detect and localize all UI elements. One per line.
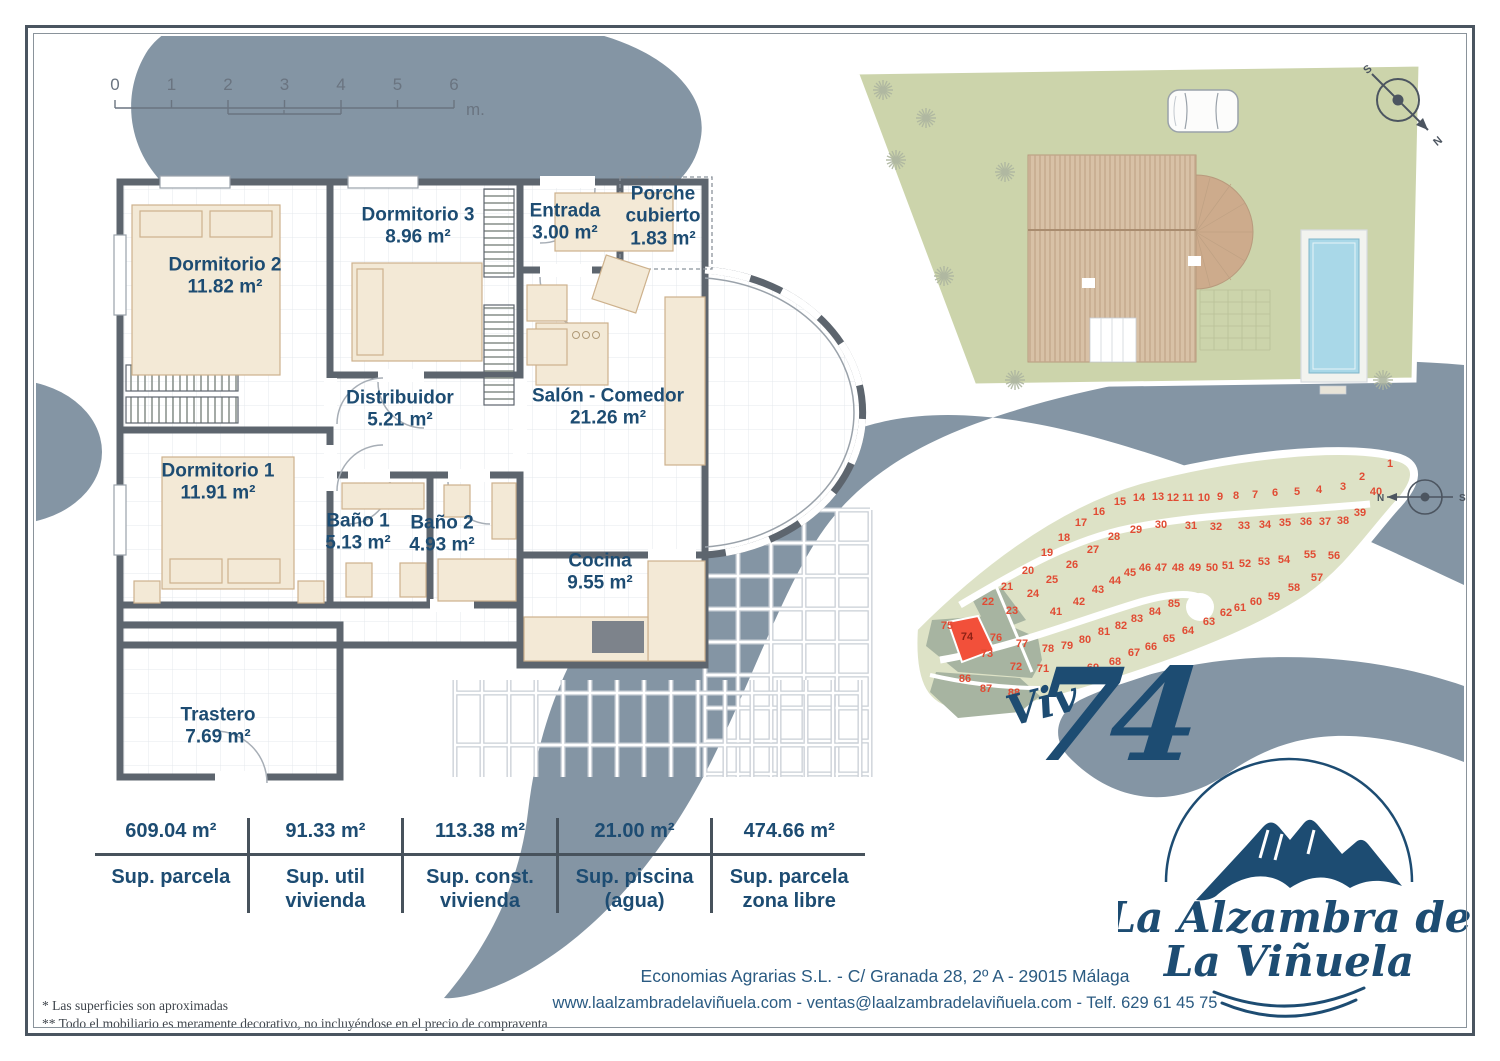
room-area: 5.13 m² (325, 533, 390, 555)
room-label-bano-2: Baño 24.93 m² (409, 513, 474, 558)
plot-number-49: 49 (1189, 562, 1201, 574)
plot-number-38: 38 (1337, 515, 1349, 527)
plot-number-34: 34 (1259, 519, 1272, 531)
plot-number-24: 24 (1027, 588, 1040, 600)
room-area: 5.21 m² (346, 410, 454, 432)
plot-number-84: 84 (1149, 606, 1162, 618)
summary-label: Sup. parcela zona libre (713, 856, 865, 913)
plot-number-15: 15 (1114, 496, 1126, 508)
plot-number-11: 11 (1182, 492, 1194, 504)
summary-column: 21.00 m²Sup. piscina (agua) (559, 818, 714, 913)
room-label-entrada: Entrada3.00 m² (530, 201, 601, 246)
summary-table: 609.04 m²Sup. parcela91.33 m²Sup. util v… (95, 818, 865, 913)
plot-compass-n: N (1377, 493, 1384, 504)
plot-number-36: 36 (1300, 516, 1312, 528)
room-area: 11.82 m² (169, 277, 282, 299)
brochure-page: 0123456 m. (0, 0, 1500, 1061)
plot-number-21: 21 (1001, 581, 1013, 593)
plot-number-48: 48 (1172, 562, 1184, 574)
room-label-dormitorio-2: Dormitorio 211.82 m² (169, 255, 282, 300)
room-label-dormitorio-1: Dormitorio 111.91 m² (162, 461, 275, 506)
plot-number-85: 85 (1168, 598, 1180, 610)
summary-column: 113.38 m²Sup. const. vivienda (404, 818, 559, 913)
plot-number-62: 62 (1220, 607, 1232, 619)
plot-number-30: 30 (1155, 519, 1167, 531)
room-label-trastero: Trastero7.69 m² (181, 705, 256, 750)
plot-number-82: 82 (1115, 620, 1127, 632)
plot-number-32: 32 (1210, 521, 1222, 533)
room-name: Distribuidor (346, 388, 454, 410)
scale-tick-label: 2 (223, 75, 232, 94)
summary-label: Sup. piscina (agua) (559, 856, 711, 913)
plot-number-1: 1 (1387, 458, 1393, 470)
mountain-icon (1196, 820, 1402, 901)
summary-value: 113.38 m² (404, 818, 556, 856)
room-name: Porche cubierto (611, 183, 715, 228)
summary-value: 609.04 m² (95, 818, 247, 856)
footer-company-line: Economias Agrarias S.L. - C/ Granada 28,… (470, 966, 1300, 987)
plot-number-45: 45 (1124, 567, 1136, 579)
plot-number-29: 29 (1130, 524, 1142, 536)
room-name: Baño 1 (325, 511, 390, 533)
footer: Economias Agrarias S.L. - C/ Granada 28,… (470, 966, 1300, 1013)
plot-number-13: 13 (1152, 491, 1164, 503)
plot-number-61: 61 (1234, 602, 1246, 614)
plot-number-75: 75 (941, 620, 953, 632)
plot-number-57: 57 (1311, 572, 1323, 584)
plot-number-10: 10 (1198, 492, 1210, 504)
unit-number: 74 (1024, 641, 1198, 791)
plot-number-58: 58 (1288, 582, 1300, 594)
plot-number-6: 6 (1272, 487, 1278, 499)
plot-number-9: 9 (1217, 491, 1223, 503)
summary-column: 609.04 m²Sup. parcela (95, 818, 250, 913)
plot-number-35: 35 (1279, 517, 1291, 529)
room-area: 4.93 m² (409, 535, 474, 557)
footer-contact-line: www.laalzambradelaviñuela.com - ventas@l… (470, 994, 1300, 1013)
room-area: 21.26 m² (532, 408, 684, 430)
plot-number-59: 59 (1268, 591, 1280, 603)
plot-number-37: 37 (1319, 516, 1331, 528)
plot-number-51: 51 (1222, 560, 1234, 572)
plot-number-3: 3 (1340, 481, 1346, 493)
plot-number-42: 42 (1073, 596, 1085, 608)
room-name: Trastero (181, 705, 256, 727)
footnote: ** Todo el mobiliario es meramente decor… (42, 1015, 548, 1033)
scale-tick-label: 0 (110, 75, 119, 94)
room-label-salon-comedor: Salón - Comedor21.26 m² (532, 386, 684, 431)
plot-number-19: 19 (1041, 547, 1053, 559)
plot-number-8: 8 (1233, 490, 1239, 502)
plot-number-20: 20 (1022, 565, 1034, 577)
plot-number-14: 14 (1133, 492, 1146, 504)
room-name: Salón - Comedor (532, 386, 684, 408)
plot-number-31: 31 (1185, 520, 1197, 532)
site-car (1168, 90, 1238, 132)
plot-number-47: 47 (1155, 562, 1167, 574)
plot-number-12: 12 (1167, 492, 1179, 504)
plot-compass-s: S (1459, 493, 1466, 504)
site-compass-n: N (1431, 134, 1445, 148)
plot-number-83: 83 (1131, 613, 1143, 625)
plot-number-86: 86 (959, 673, 971, 685)
room-name: Entrada (530, 201, 601, 223)
room-name: Baño 2 (409, 513, 474, 535)
plot-number-41: 41 (1050, 606, 1062, 618)
room-label-distribuidor: Distribuidor5.21 m² (346, 388, 454, 433)
plot-number-76: 76 (990, 632, 1002, 644)
summary-value: 21.00 m² (559, 818, 711, 856)
plot-number-54: 54 (1278, 554, 1291, 566)
site-plan: S N (838, 50, 1462, 400)
room-label-dormitorio-3: Dormitorio 38.96 m² (362, 205, 475, 250)
scale-unit-label: m. (466, 100, 485, 119)
room-area: 7.69 m² (181, 727, 256, 749)
unit-title: Viv 74 (992, 655, 1212, 855)
plot-number-55: 55 (1304, 549, 1316, 561)
scale-bar: 0123456 m. (100, 70, 520, 130)
plot-number-17: 17 (1075, 517, 1087, 529)
summary-label: Sup. parcela (95, 856, 247, 889)
plot-number-18: 18 (1058, 532, 1070, 544)
plot-number-39: 39 (1354, 507, 1366, 519)
plot-number-60: 60 (1250, 596, 1262, 608)
room-label-cocina: Cocina9.55 m² (567, 551, 632, 596)
room-label-bano-1: Baño 15.13 m² (325, 511, 390, 556)
plot-number-28: 28 (1108, 531, 1120, 543)
summary-label: Sup. util vivienda (250, 856, 402, 913)
summary-value: 474.66 m² (713, 818, 865, 856)
plot-number-4: 4 (1316, 484, 1323, 496)
plot-number-33: 33 (1238, 520, 1250, 532)
scale-tick-label: 3 (280, 75, 289, 94)
plot-number-16: 16 (1093, 506, 1105, 518)
room-area: 3.00 m² (530, 223, 601, 245)
summary-column: 91.33 m²Sup. util vivienda (250, 818, 405, 913)
room-name: Dormitorio 1 (162, 461, 275, 483)
plot-number-7: 7 (1252, 489, 1258, 501)
site-pool (1301, 230, 1367, 394)
summary-value: 91.33 m² (250, 818, 402, 856)
wave-left-edge (36, 380, 102, 524)
room-area: 11.91 m² (162, 483, 275, 505)
scale-tick-label: 1 (167, 75, 176, 94)
plot-number-22: 22 (982, 596, 994, 608)
room-label-porche-cubierto: Porche cubierto1.83 m² (611, 183, 715, 250)
plot-number-64: 64 (1182, 625, 1195, 637)
plot-number-50: 50 (1206, 562, 1218, 574)
plot-number-2: 2 (1359, 471, 1365, 483)
room-area: 1.83 m² (611, 228, 715, 250)
plot-number-87: 87 (980, 683, 992, 695)
plot-number-63: 63 (1203, 616, 1215, 628)
brand-line1: La Alzambra de (1118, 893, 1471, 942)
room-name: Dormitorio 2 (169, 255, 282, 277)
room-name: Dormitorio 3 (362, 205, 475, 227)
room-name: Cocina (567, 551, 632, 573)
scale-tick-label: 4 (336, 75, 345, 94)
plot-number-46: 46 (1139, 562, 1151, 574)
plot-number-52: 52 (1239, 558, 1251, 570)
room-area: 8.96 m² (362, 227, 475, 249)
room-labels: Dormitorio 211.82 m²Dormitorio 38.96 m²E… (100, 165, 880, 795)
room-area: 9.55 m² (567, 573, 632, 595)
scale-tick-label: 5 (393, 75, 402, 94)
summary-column: 474.66 m²Sup. parcela zona libre (713, 818, 865, 913)
scale-tick-label: 6 (449, 75, 458, 94)
plot-number-77: 77 (1016, 638, 1028, 650)
plot-number-43: 43 (1092, 584, 1104, 596)
plot-number-74: 74 (961, 631, 974, 643)
plot-number-53: 53 (1258, 556, 1270, 568)
scale-ticks: 0123456 (110, 75, 458, 108)
plot-number-5: 5 (1294, 486, 1300, 498)
plot-number-25: 25 (1046, 574, 1058, 586)
plot-number-56: 56 (1328, 550, 1340, 562)
plot-number-44: 44 (1109, 575, 1122, 587)
plot-number-81: 81 (1098, 626, 1110, 638)
plot-number-26: 26 (1066, 559, 1078, 571)
footnotes: * Las superficies son aproximadas** Todo… (42, 997, 548, 1033)
footnote: * Las superficies son aproximadas (42, 997, 548, 1015)
plot-number-27: 27 (1087, 544, 1099, 556)
summary-label: Sup. const. vivienda (404, 856, 556, 913)
plot-number-23: 23 (1006, 605, 1018, 617)
